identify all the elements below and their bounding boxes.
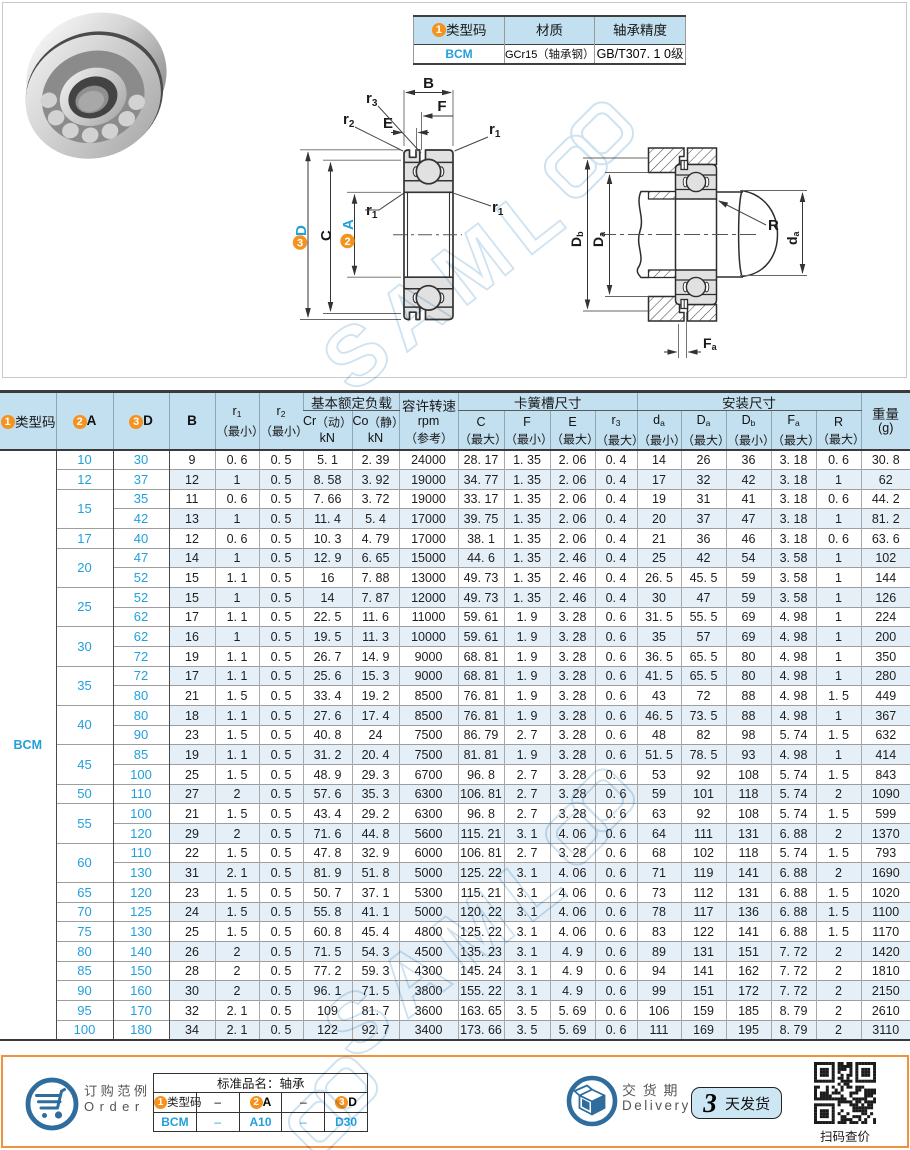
svg-text:r2: r2 — [343, 111, 355, 130]
svg-text:A: A — [340, 219, 357, 230]
svg-text:2: 2 — [344, 236, 350, 248]
svg-text:da: da — [784, 230, 801, 245]
svg-text:r3: r3 — [366, 90, 378, 109]
svg-text:R: R — [768, 217, 779, 234]
svg-text:Fa: Fa — [703, 335, 718, 352]
svg-text:D: D — [293, 225, 310, 236]
svg-text:Db: Db — [568, 231, 585, 247]
svg-text:Da: Da — [590, 231, 607, 247]
svg-text:C: C — [318, 230, 335, 241]
svg-text:r1: r1 — [492, 199, 504, 218]
svg-text:3: 3 — [297, 238, 303, 250]
svg-text:B: B — [423, 75, 434, 92]
svg-text:r1: r1 — [489, 121, 501, 140]
svg-text:F: F — [437, 98, 446, 115]
svg-text:r1: r1 — [366, 202, 378, 221]
